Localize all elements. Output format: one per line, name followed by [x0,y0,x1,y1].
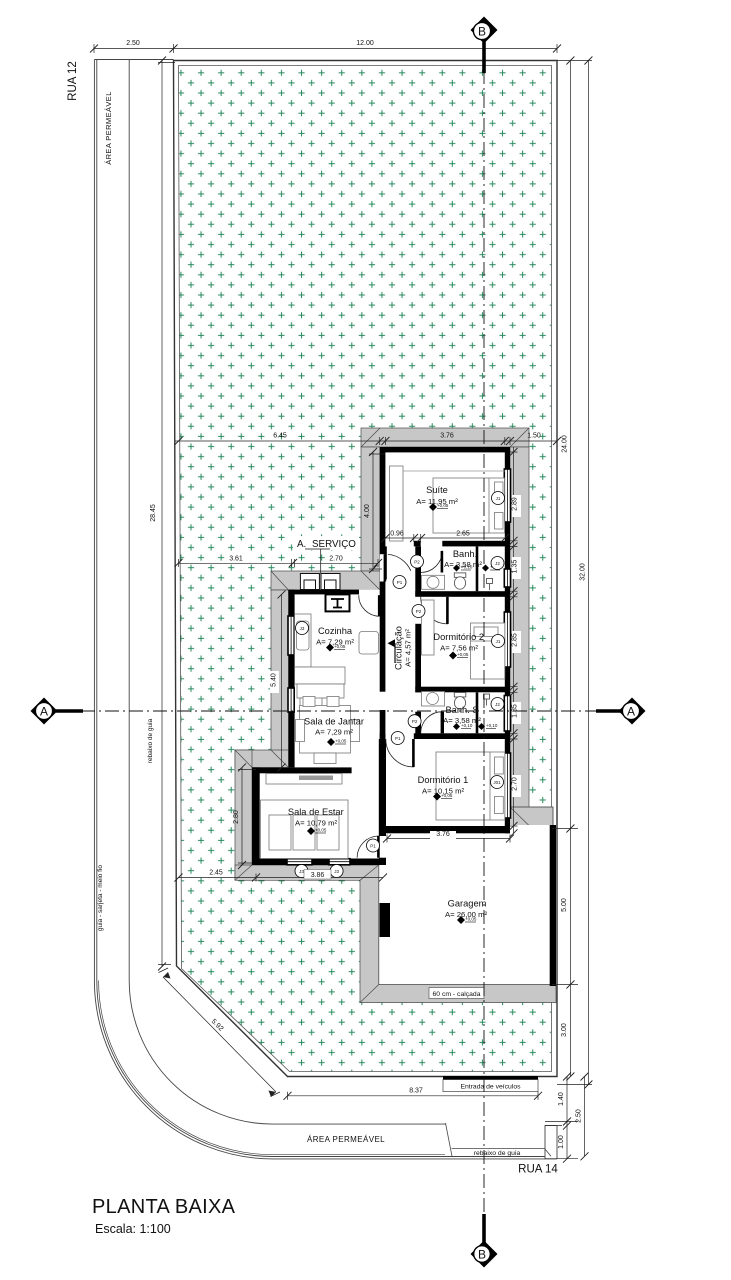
svg-text:Dormitório 1: Dormitório 1 [418,775,469,785]
svg-text:Banh. S: Banh. S [445,705,478,715]
svg-text:12.00: 12.00 [356,40,374,47]
svg-text:5.40: 5.40 [271,673,278,687]
svg-text:SERVIÇO: SERVIÇO [312,539,356,550]
svg-text:PLANTA BAIXA: PLANTA BAIXA [92,1196,236,1218]
svg-text:8.37: 8.37 [409,1088,423,1095]
svg-text:+0,05: +0,05 [334,644,346,649]
svg-text:3.00: 3.00 [561,1023,568,1037]
svg-text:6.45: 6.45 [273,433,287,440]
svg-text:ÁREA PERMEÁVEL: ÁREA PERMEÁVEL [104,91,113,165]
svg-text:A: A [627,705,635,719]
svg-text:guia - sarjeta - meio fio: guia - sarjeta - meio fio [97,865,104,931]
svg-text:Escala: 1:100: Escala: 1:100 [95,1222,171,1236]
svg-text:J1: J1 [496,496,501,501]
svg-text:3.61: 3.61 [229,556,243,563]
svg-text:rebaixo de guia: rebaixo de guia [474,1150,521,1157]
svg-text:1.40: 1.40 [558,1092,565,1106]
svg-text:J01: J01 [493,780,501,785]
svg-text:+0,10: +0,10 [461,565,473,570]
svg-text:P2: P2 [416,609,422,614]
svg-text:A= 7,29 m²: A= 7,29 m² [315,728,353,737]
svg-text:24.00: 24.00 [562,435,569,453]
svg-text:+0,05: +0,05 [315,828,327,833]
svg-text:+0,05: +0,05 [457,652,469,657]
svg-text:2.45: 2.45 [209,870,223,877]
svg-text:J2: J2 [495,561,500,566]
svg-text:Suíte: Suíte [426,485,448,495]
svg-text:A.: A. [297,539,306,550]
svg-text:Cozinha: Cozinha [318,626,353,636]
svg-text:1.50: 1.50 [527,433,541,440]
svg-text:32.00: 32.00 [580,563,587,581]
svg-text:A= 10,79 m²: A= 10,79 m² [295,819,338,828]
svg-text:1.35: 1.35 [512,560,519,574]
svg-text:+0,05: +0,05 [335,739,347,744]
svg-text:3.76: 3.76 [440,433,454,440]
svg-text:B: B [478,25,486,39]
svg-text:J1: J1 [496,639,501,644]
svg-text:P2: P2 [412,719,418,724]
svg-text:Dormitório 2: Dormitório 2 [433,632,484,642]
svg-text:2.50: 2.50 [126,40,140,47]
svg-text:2.70: 2.70 [329,556,343,563]
svg-text:rebaixo de guia: rebaixo de guia [147,718,154,763]
svg-text:+0,05: +0,05 [465,917,477,922]
svg-text:0.96: 0.96 [390,531,404,538]
svg-text:Sala de Jantar: Sala de Jantar [304,717,364,727]
svg-text:4.00: 4.00 [364,504,371,518]
svg-text:P1: P1 [395,736,401,741]
svg-text:P1: P1 [397,580,403,585]
svg-text:3.86: 3.86 [311,872,325,879]
svg-text:ÁREA PERMEÁVEL: ÁREA PERMEÁVEL [307,1135,385,1144]
svg-text:A: A [40,705,48,719]
svg-text:J2: J2 [495,702,500,707]
svg-text:A= 4,57 m²: A= 4,57 m² [404,629,413,667]
svg-text:Banh.: Banh. [453,549,477,559]
svg-text:J3: J3 [334,869,339,874]
svg-text:+0,10: +0,10 [486,723,498,728]
svg-text:RUA 12: RUA 12 [67,61,79,101]
svg-text:2.70: 2.70 [512,777,519,791]
svg-text:2.85: 2.85 [512,633,519,647]
svg-text:RUA 14: RUA 14 [518,1164,558,1176]
svg-text:B: B [478,1248,486,1262]
svg-text:Garagem: Garagem [448,899,487,909]
svg-text:60 cm - calçada: 60 cm - calçada [433,991,481,998]
svg-text:1.00: 1.00 [558,1135,565,1149]
svg-text:2.89: 2.89 [512,497,519,511]
svg-text:Sala de Estar: Sala de Estar [288,807,344,817]
svg-text:Entrada de veículos: Entrada de veículos [460,1084,521,1091]
svg-text:2.80: 2.80 [233,810,240,824]
svg-text:+0,10: +0,10 [461,723,473,728]
svg-text:+0,05: +0,05 [441,793,453,798]
svg-text:P1: P1 [370,844,376,849]
svg-text:P2: P2 [414,560,420,565]
svg-text:3.76: 3.76 [436,831,450,838]
svg-text:2.65: 2.65 [456,531,470,538]
svg-text:+0,05: +0,05 [437,503,449,508]
svg-text:J3: J3 [299,869,304,874]
svg-text:5.00: 5.00 [561,898,568,912]
svg-text:2.50: 2.50 [576,1109,583,1123]
svg-text:J3: J3 [300,626,305,631]
svg-text:28.45: 28.45 [150,504,157,522]
